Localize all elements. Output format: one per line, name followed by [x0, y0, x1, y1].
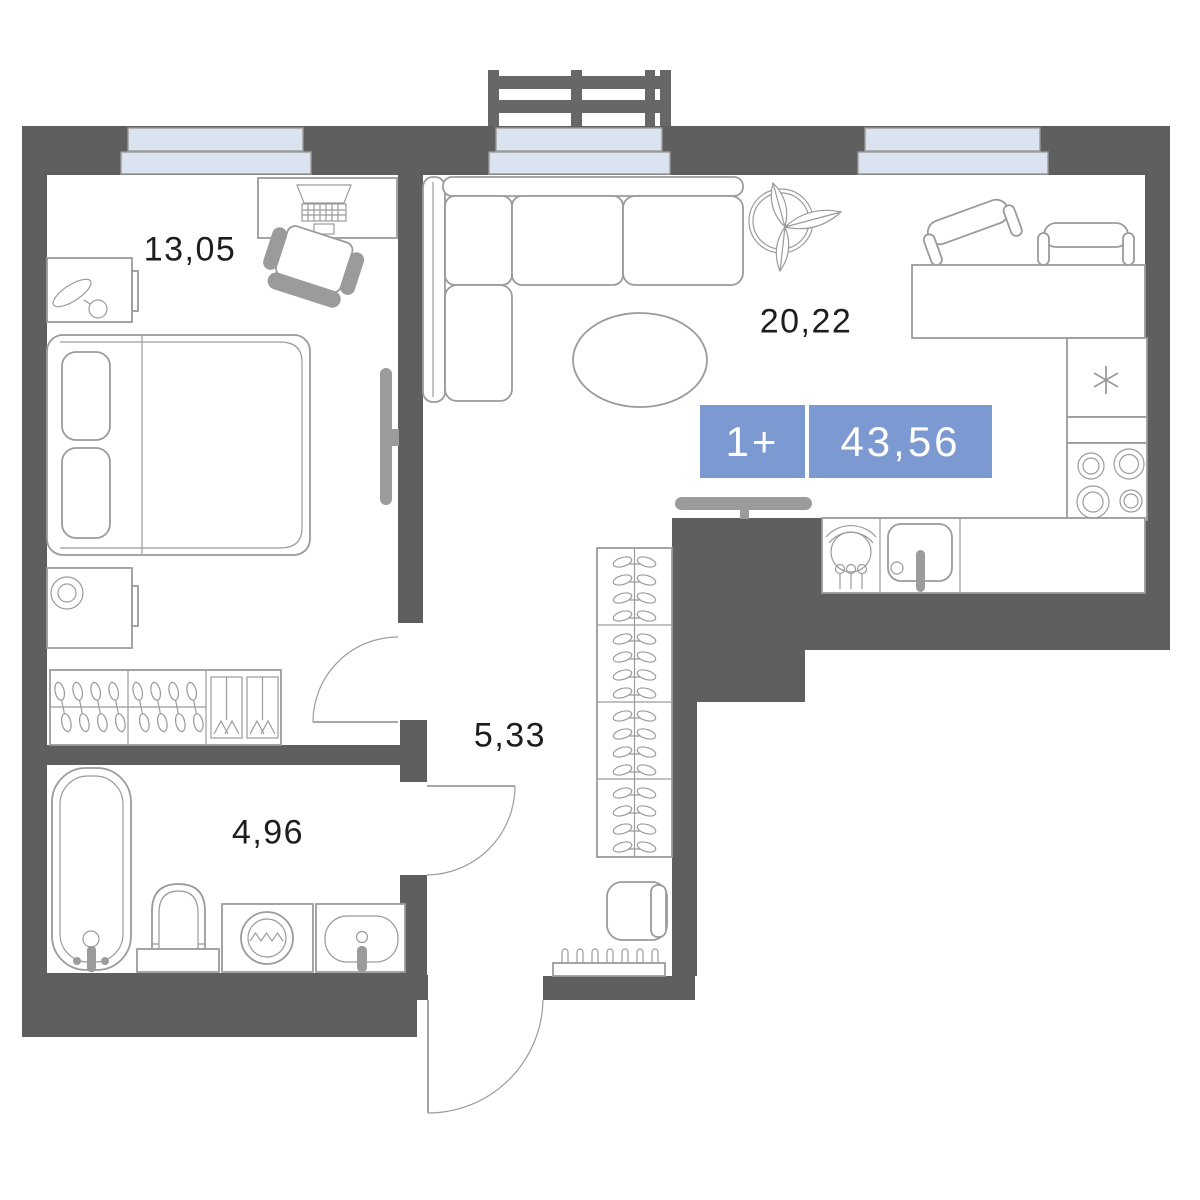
pouf	[607, 882, 667, 940]
wall-segment	[543, 976, 695, 1000]
wall-segment	[22, 973, 417, 1037]
nightstand-plant	[47, 258, 138, 322]
badge-total-area: 43,56	[809, 405, 992, 478]
bedroom-area-label: 13,05	[144, 231, 237, 270]
wardrobe-hallway	[597, 548, 672, 857]
plant-icon	[749, 183, 841, 271]
hallway-area-label: 5,33	[474, 717, 546, 756]
wardrobe-bedroom	[50, 670, 281, 745]
dining-chair	[1038, 223, 1134, 265]
pillow	[62, 448, 110, 538]
tv-bedroom	[380, 368, 399, 505]
pillow	[62, 352, 110, 440]
windows	[121, 128, 1048, 174]
coffee-table	[573, 313, 707, 407]
wall-segment	[398, 175, 423, 623]
wall-segment	[22, 175, 47, 1037]
window-living	[489, 128, 670, 174]
bathtub	[52, 768, 131, 972]
floor-plan-drawing	[0, 0, 1200, 1200]
floor-plan: 13,05 20,22 5,33 4,96 1+ 43,56	[0, 0, 1200, 1200]
door-entrance	[428, 1000, 543, 1113]
apartment-badge: 1+ 43,56	[700, 405, 992, 478]
kitchen-counter	[822, 518, 1145, 593]
door-bedroom	[313, 637, 398, 722]
bathroom-sink	[316, 904, 405, 972]
wall-segment	[1145, 175, 1170, 650]
wall-segment	[672, 518, 822, 650]
kitchen-tall-units	[1067, 338, 1147, 520]
wall-segment	[805, 593, 1170, 650]
stove	[1067, 443, 1147, 520]
toilet	[137, 884, 219, 972]
washing-machine	[222, 904, 313, 972]
window-bedroom	[121, 128, 311, 174]
bathroom-area-label: 4,96	[232, 814, 304, 853]
window-kitchen	[858, 128, 1048, 174]
balcony-railing	[488, 70, 671, 126]
badge-rooms-count: 1+	[700, 405, 805, 478]
tv-living	[675, 497, 812, 519]
nightstand-lamp	[47, 568, 138, 648]
dining-chair	[919, 194, 1024, 266]
bed	[47, 335, 310, 555]
wall-segment	[47, 745, 412, 765]
wall-segment	[412, 975, 428, 1000]
dining-table	[912, 265, 1145, 338]
door-bathroom	[427, 786, 515, 875]
wall-segment	[672, 650, 805, 702]
wall-segment	[672, 700, 697, 976]
coat-rack	[553, 949, 665, 976]
living-kitchen-area-label: 20,22	[760, 303, 853, 342]
